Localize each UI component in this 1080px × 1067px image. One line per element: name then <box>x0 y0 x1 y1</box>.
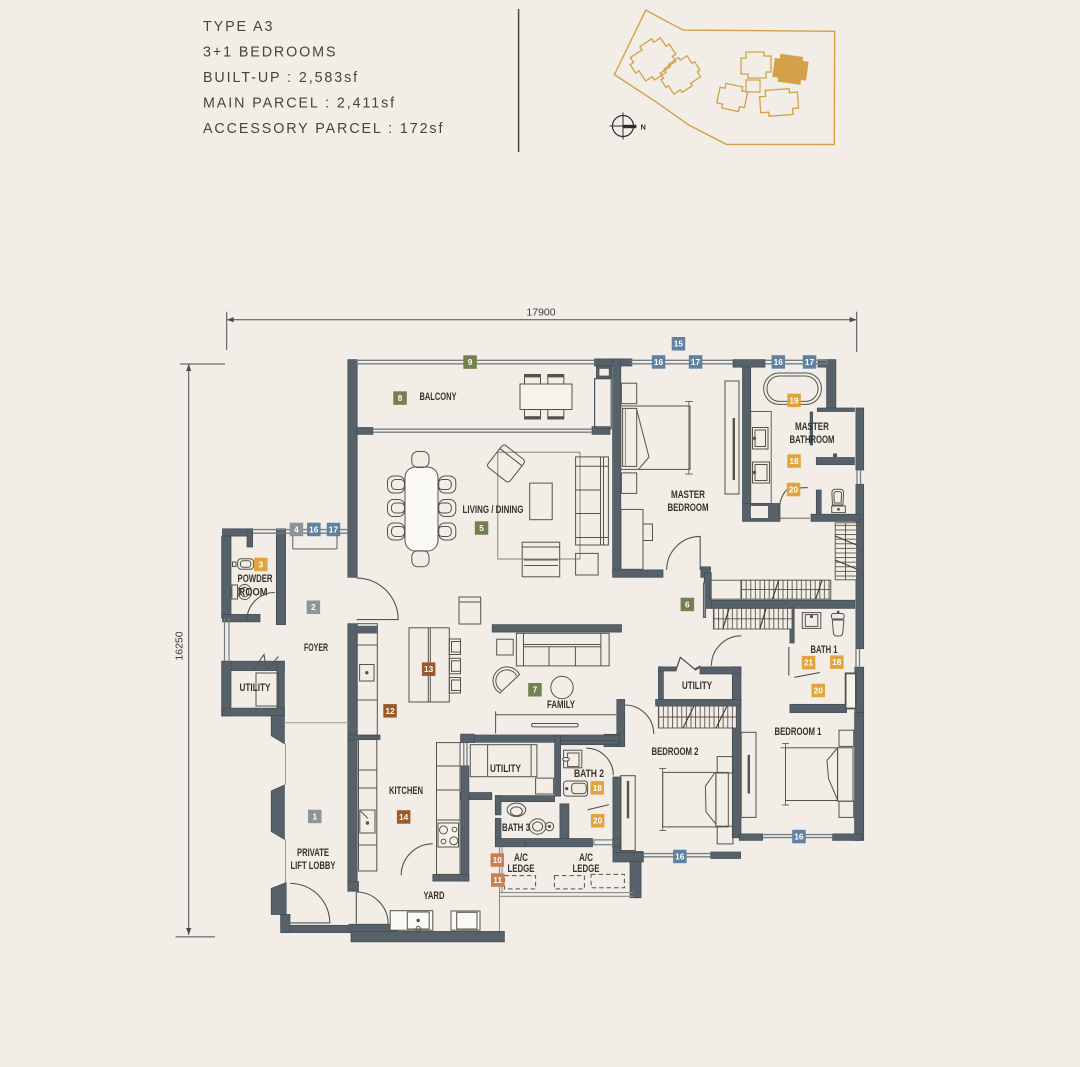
svg-text:17900: 17900 <box>526 307 555 319</box>
svg-text:6: 6 <box>685 599 690 609</box>
svg-text:16: 16 <box>309 524 319 534</box>
svg-text:17: 17 <box>329 524 339 534</box>
svg-text:UTILITY: UTILITY <box>682 680 712 692</box>
svg-text:ACCESSORY PARCEL : 172sf: ACCESSORY PARCEL : 172sf <box>203 121 444 137</box>
svg-text:1: 1 <box>312 812 317 822</box>
svg-text:20: 20 <box>593 816 603 826</box>
svg-text:7: 7 <box>533 685 538 695</box>
svg-text:FAMILY: FAMILY <box>547 699 575 711</box>
svg-text:BATH 3: BATH 3 <box>502 822 530 834</box>
svg-text:17: 17 <box>691 357 701 367</box>
svg-text:LEDGE: LEDGE <box>508 863 535 875</box>
svg-text:5: 5 <box>479 523 484 533</box>
svg-text:20: 20 <box>814 685 824 695</box>
svg-text:17: 17 <box>805 357 815 367</box>
svg-text:BEDROOM 2: BEDROOM 2 <box>652 746 699 758</box>
svg-text:4: 4 <box>294 524 299 534</box>
svg-text:YARD: YARD <box>424 890 445 902</box>
svg-text:FOYER: FOYER <box>304 642 328 654</box>
svg-text:BATH 2: BATH 2 <box>574 768 604 780</box>
svg-text:N: N <box>641 123 646 132</box>
svg-text:MASTER: MASTER <box>671 489 705 501</box>
svg-text:16: 16 <box>774 357 784 367</box>
svg-text:LIVING / DINING: LIVING / DINING <box>463 504 524 516</box>
svg-text:POWDER: POWDER <box>238 573 273 585</box>
svg-text:BEDROOM 1: BEDROOM 1 <box>775 726 822 738</box>
svg-text:16: 16 <box>675 851 685 861</box>
svg-text:16: 16 <box>794 832 804 842</box>
svg-text:18: 18 <box>789 456 799 466</box>
svg-text:2: 2 <box>311 602 316 612</box>
svg-text:KITCHEN: KITCHEN <box>389 785 423 797</box>
svg-text:MAIN PARCEL : 2,411sf: MAIN PARCEL : 2,411sf <box>203 96 396 112</box>
svg-text:3: 3 <box>258 559 263 569</box>
svg-text:ROOM: ROOM <box>239 587 268 599</box>
svg-text:3+1 BEDROOMS: 3+1 BEDROOMS <box>203 45 337 61</box>
svg-text:14: 14 <box>399 812 409 822</box>
svg-text:UTILITY: UTILITY <box>490 763 521 775</box>
svg-text:BEDROOM: BEDROOM <box>668 502 709 514</box>
svg-text:18: 18 <box>593 783 603 793</box>
svg-text:BATH 1: BATH 1 <box>811 644 838 656</box>
svg-text:21: 21 <box>804 658 814 668</box>
svg-text:UTILITY: UTILITY <box>240 682 271 694</box>
svg-text:BUILT-UP : 2,583sf: BUILT-UP : 2,583sf <box>203 70 359 86</box>
svg-text:PRIVATE: PRIVATE <box>297 847 329 859</box>
svg-text:11: 11 <box>493 875 502 885</box>
svg-text:LEDGE: LEDGE <box>573 863 600 875</box>
svg-text:13: 13 <box>424 664 434 674</box>
svg-text:16: 16 <box>654 357 664 367</box>
svg-text:20: 20 <box>789 485 799 495</box>
svg-text:8: 8 <box>398 393 403 403</box>
svg-text:MASTER: MASTER <box>795 421 829 433</box>
svg-text:16250: 16250 <box>174 631 186 660</box>
svg-text:TYPE A3: TYPE A3 <box>203 19 274 35</box>
svg-text:19: 19 <box>789 395 799 405</box>
svg-text:12: 12 <box>385 706 395 716</box>
svg-text:BATHROOM: BATHROOM <box>790 434 835 446</box>
svg-text:BALCONY: BALCONY <box>420 391 457 403</box>
svg-text:15: 15 <box>674 339 684 349</box>
svg-text:9: 9 <box>468 357 473 367</box>
svg-text:10: 10 <box>493 855 503 865</box>
svg-text:18: 18 <box>832 657 842 667</box>
svg-text:LIFT LOBBY: LIFT LOBBY <box>291 860 336 872</box>
